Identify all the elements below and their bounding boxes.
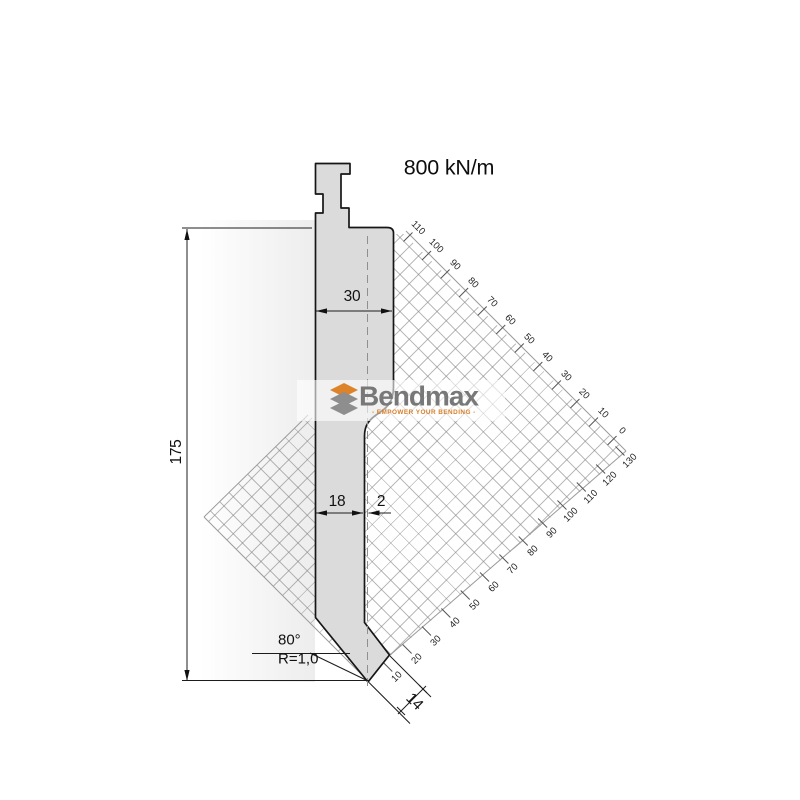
arrow-30-right xyxy=(381,308,392,313)
technical-drawing-canvas: 1101009080706050403020100130120110100908… xyxy=(0,0,800,800)
dim-text-2: 2 xyxy=(377,493,385,511)
tip-angle-label: 80° xyxy=(278,632,301,649)
arrow-18-right xyxy=(352,510,363,515)
dim-text-18: 18 xyxy=(329,493,346,511)
arrow-175-top xyxy=(184,229,189,240)
capacity-label: 800 kN/m xyxy=(404,156,494,181)
dimension-linework xyxy=(0,0,800,800)
arrow-18-left xyxy=(316,510,327,515)
dim-text-175: 175 xyxy=(168,440,186,465)
dim-text-30: 30 xyxy=(344,288,361,306)
arrow-30-left xyxy=(316,308,327,313)
tip-radius-label: R=1,0 xyxy=(278,651,318,668)
arrow-175-bottom xyxy=(184,670,189,681)
arrow-2 xyxy=(369,510,380,515)
